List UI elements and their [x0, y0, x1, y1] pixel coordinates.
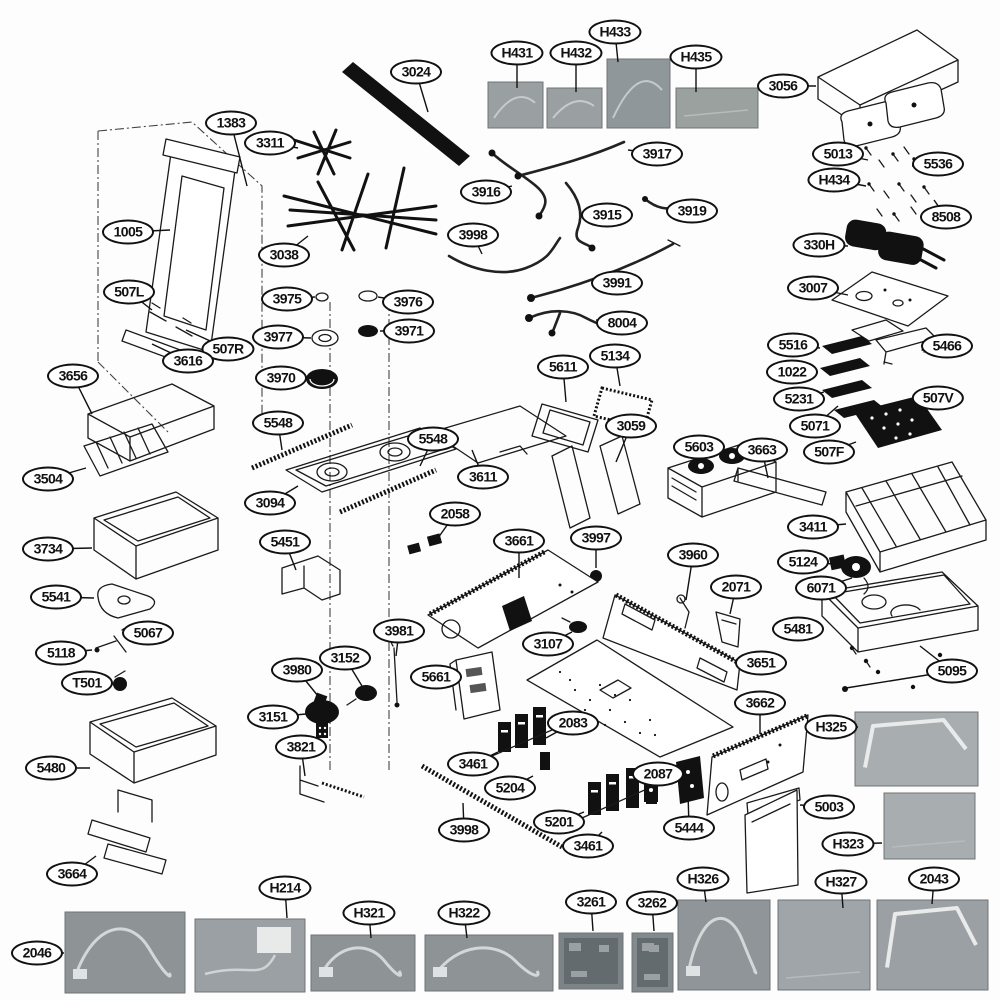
part-callout-3661: 3661 — [493, 529, 545, 554]
part-callout-3651: 3651 — [735, 651, 787, 676]
photo-H325 — [855, 712, 978, 786]
part-frame-5611 — [532, 404, 598, 452]
photo-H321 — [311, 935, 415, 991]
part-callout-3971: 3971 — [383, 319, 435, 344]
part-callout-H323: H323 — [821, 832, 874, 857]
part-bracket-2071 — [716, 612, 740, 647]
part-callout-3504: 3504 — [22, 467, 74, 492]
part-callout-3976: 3976 — [382, 290, 434, 315]
part-callout-3915: 3915 — [581, 203, 633, 228]
part-callout-2087: 2087 — [632, 762, 684, 787]
part-burner-head-3151 — [305, 700, 339, 738]
part-callout-3975: 3975 — [261, 287, 313, 312]
part-callout-3916: 3916 — [460, 180, 512, 205]
part-latch-3960 — [677, 595, 689, 628]
part-callout-3056: 3056 — [757, 74, 809, 99]
part-callout-5481: 5481 — [772, 617, 824, 642]
photo-2046 — [65, 912, 185, 993]
part-callout-3977: 3977 — [252, 325, 304, 350]
part-callout-3007: 3007 — [787, 276, 839, 301]
part-callout-6071: 6071 — [795, 576, 847, 601]
parts-diagram: 138333113024H431H432H433H435305650135536… — [0, 0, 1000, 1000]
photo-H214 — [195, 919, 305, 992]
part-callout-H434: H434 — [807, 168, 860, 193]
part-tub-5480 — [90, 698, 216, 783]
part-callout-H214: H214 — [258, 876, 311, 901]
part-shields-3059 — [552, 436, 640, 528]
part-callout-8508: 8508 — [920, 205, 972, 230]
part-bracket-3664 — [88, 790, 166, 874]
part-callout-5444: 5444 — [663, 816, 715, 841]
part-callout-5603: 5603 — [673, 435, 725, 460]
photo-H327 — [778, 900, 870, 990]
part-callout-507L: 507L — [103, 280, 155, 305]
part-callout-2043: 2043 — [908, 867, 960, 892]
part-callout-H431: H431 — [490, 41, 543, 66]
part-callout-H325: H325 — [804, 715, 857, 740]
part-callout-3998: 3998 — [447, 223, 499, 248]
part-callout-3616: 3616 — [162, 349, 214, 374]
photo-H433 — [607, 59, 670, 128]
part-callout-2071: 2071 — [710, 575, 762, 600]
part-drawer-3656 — [88, 384, 214, 461]
part-callout-3917: 3917 — [631, 142, 683, 167]
part-grate-3311 — [294, 130, 350, 174]
part-callout-3038: 3038 — [258, 243, 310, 268]
part-callout-2046: 2046 — [11, 941, 63, 966]
part-bracket-3663 — [734, 468, 826, 505]
part-door-assembly — [98, 122, 262, 434]
photo-H326 — [678, 900, 770, 990]
part-callout-2058: 2058 — [429, 502, 481, 527]
part-callout-3094: 3094 — [244, 491, 296, 516]
part-callout-5204: 5204 — [484, 776, 536, 801]
part-callout-3107: 3107 — [522, 632, 574, 657]
part-callout-3997: 3997 — [570, 526, 622, 551]
part-callout-8004: 8004 — [596, 311, 648, 336]
part-rail-5548-right — [340, 470, 436, 512]
part-callout-3262: 3262 — [626, 891, 678, 916]
part-boards-5516-1022-5231-5071 — [820, 336, 884, 418]
part-callout-5003: 5003 — [803, 795, 855, 820]
part-bracket-3821 — [300, 766, 364, 802]
photo-2043 — [877, 900, 988, 990]
part-callout-5516: 5516 — [767, 333, 819, 358]
part-relay-cluster-2083 — [492, 707, 552, 770]
part-callout-3734: 3734 — [22, 537, 74, 562]
part-callout-3821: 3821 — [275, 735, 327, 760]
part-callout-H327: H327 — [814, 870, 867, 895]
part-coil-3504 — [84, 424, 168, 476]
part-callout-3662: 3662 — [734, 691, 786, 716]
part-callout-H326: H326 — [676, 867, 729, 892]
part-plate-5541 — [98, 584, 155, 618]
part-callout-5201: 5201 — [533, 810, 585, 835]
part-callout-3980: 3980 — [271, 658, 323, 683]
photo-H323 — [884, 793, 975, 859]
part-callout-3960: 3960 — [667, 543, 719, 568]
part-callout-H433: H433 — [588, 20, 641, 45]
part-callout-3411: 3411 — [787, 515, 839, 540]
part-rod-3981 — [391, 633, 400, 708]
part-pcb-3007 — [832, 272, 948, 341]
part-thermostat-T501 — [113, 671, 127, 691]
part-callout-5067: 5067 — [122, 621, 174, 646]
part-callout-5134: 5134 — [589, 344, 641, 369]
part-callout-3998: 3998 — [438, 818, 490, 843]
part-callout-3663: 3663 — [736, 438, 788, 463]
part-callout-3059: 3059 — [605, 414, 657, 439]
part-panel-5003 — [745, 788, 800, 893]
construction-lines — [330, 302, 389, 772]
part-callout-1022: 1022 — [766, 360, 818, 385]
part-callout-3664: 3664 — [46, 862, 98, 887]
photo-3261 — [559, 933, 623, 989]
part-callout-2083: 2083 — [547, 711, 599, 736]
part-control-5661 — [450, 652, 500, 719]
part-callout-5661: 5661 — [410, 665, 462, 690]
part-callout-5466: 5466 — [921, 334, 973, 359]
part-panel-3661 — [428, 550, 598, 648]
photo-H435 — [676, 88, 758, 128]
part-callout-3024: 3024 — [390, 60, 442, 85]
part-callout-3461: 3461 — [562, 834, 614, 859]
part-callout-3991: 3991 — [591, 271, 643, 296]
photo-3262 — [632, 933, 673, 992]
part-callout-507V: 507V — [912, 386, 964, 411]
part-callout-H321: H321 — [342, 901, 395, 926]
part-callout-H435: H435 — [669, 45, 722, 70]
part-callout-5548: 5548 — [252, 411, 304, 436]
part-callout-3461: 3461 — [447, 752, 499, 777]
part-connectors-2058 — [407, 533, 442, 554]
part-callout-5118: 5118 — [35, 641, 87, 666]
part-bracket-5451 — [282, 556, 340, 600]
part-callout-5541: 5541 — [30, 585, 82, 610]
part-callout-T501: T501 — [61, 671, 113, 696]
part-callout-5124: 5124 — [777, 550, 829, 575]
part-callout-5451: 5451 — [259, 530, 311, 555]
part-callout-5548: 5548 — [407, 427, 459, 452]
part-callout-H432: H432 — [549, 41, 602, 66]
part-orifice-3107 — [562, 618, 587, 633]
part-callout-507F: 507F — [803, 440, 855, 465]
photo-H322 — [425, 935, 553, 991]
part-callout-3656: 3656 — [47, 364, 99, 389]
part-callout-1383: 1383 — [205, 111, 257, 136]
part-callout-3261: 3261 — [565, 890, 617, 915]
part-callout-5095: 5095 — [926, 659, 978, 684]
part-callout-5231: 5231 — [773, 387, 825, 412]
part-callout-5013: 5013 — [812, 142, 864, 167]
photo-H432 — [547, 88, 602, 128]
part-callout-3151: 3151 — [247, 705, 299, 730]
part-callout-5071: 5071 — [789, 414, 841, 439]
part-callout-3981: 3981 — [373, 619, 425, 644]
part-callout-3970: 3970 — [255, 366, 307, 391]
part-callout-330H: 330H — [792, 233, 845, 258]
part-callout-3611: 3611 — [457, 465, 509, 490]
part-valve-3152 — [347, 685, 377, 705]
photo-H431 — [488, 82, 543, 128]
part-callout-5536: 5536 — [912, 152, 964, 177]
part-callout-5611: 5611 — [537, 355, 589, 380]
part-frame-3411 — [846, 462, 986, 572]
part-callout-3311: 3311 — [244, 131, 296, 156]
part-callout-H322: H322 — [437, 901, 490, 926]
part-callout-5480: 5480 — [25, 756, 77, 781]
part-callout-1005: 1005 — [102, 220, 154, 245]
part-callout-3919: 3919 — [666, 199, 718, 224]
part-burner-rings — [306, 291, 378, 389]
part-tub-3734 — [94, 492, 218, 579]
part-callout-3152: 3152 — [319, 646, 371, 671]
